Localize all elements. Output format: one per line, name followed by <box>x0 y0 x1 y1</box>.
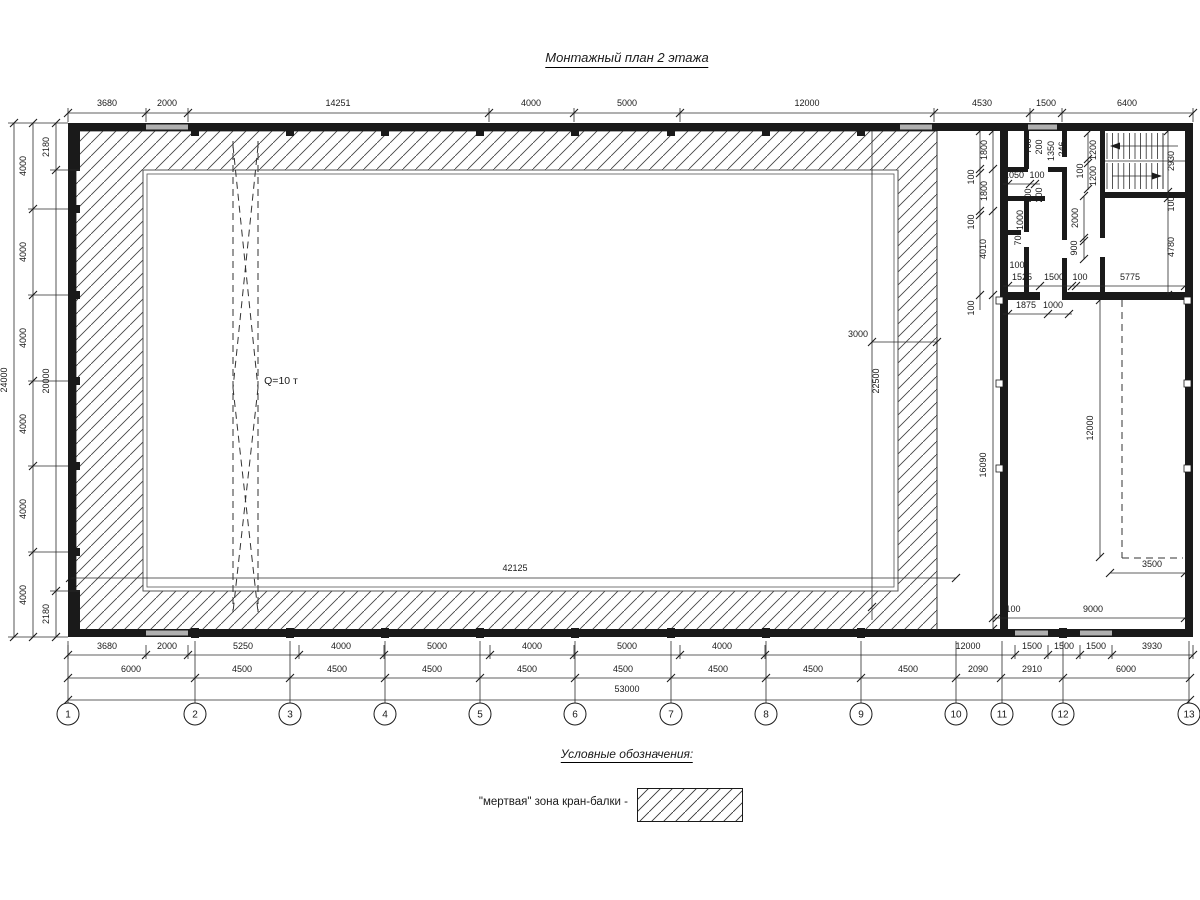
dim-label: 100 <box>1009 260 1024 270</box>
column-marker <box>762 628 770 638</box>
wall <box>1100 257 1105 292</box>
dim-label: 6400 <box>1117 98 1137 108</box>
wall-opening <box>1015 631 1048 636</box>
dim-label: 3930 <box>1142 641 1162 651</box>
window-marker <box>996 465 1003 472</box>
dim-label: 16090 <box>978 452 988 477</box>
column-marker <box>70 462 80 470</box>
dim-label: 4000 <box>712 641 732 651</box>
dim-label: 100 <box>1166 196 1176 211</box>
inner-zone-outline <box>147 174 894 587</box>
grid-bubble-label: 5 <box>477 710 483 721</box>
column-marker <box>476 126 484 136</box>
dim-label: 12000 <box>794 98 819 108</box>
dim-label: 4010 <box>978 239 988 259</box>
dim-label: 2910 <box>1022 664 1042 674</box>
dim-label: 3500 <box>1142 559 1162 569</box>
dim-label: 900 <box>1069 240 1079 255</box>
dim-label: 20000 <box>41 368 51 393</box>
wall <box>1024 247 1029 292</box>
dim-label: 4500 <box>898 664 918 674</box>
dim-label: 1500 <box>1044 272 1064 282</box>
legend-hatch-swatch <box>637 788 743 822</box>
column-marker <box>667 628 675 638</box>
column-marker <box>857 126 865 136</box>
dim-label: 24000 <box>0 367 9 392</box>
dim-label: 2180 <box>41 137 51 157</box>
dim-label: 1200 <box>1088 140 1098 160</box>
dim-label: 4530 <box>972 98 992 108</box>
dim-label: 14251 <box>325 98 350 108</box>
dim-label: 9000 <box>1083 604 1103 614</box>
dim-label: 4500 <box>232 664 252 674</box>
dim-label: 1500 <box>1086 641 1106 651</box>
dim-label: 4000 <box>331 641 351 651</box>
dim-label: 4000 <box>18 242 28 262</box>
dim-label: 1000 <box>1015 210 1025 230</box>
dim-label: 53000 <box>614 684 639 694</box>
dim-label: 1200 <box>1088 166 1098 186</box>
plan-geometry <box>8 108 1197 704</box>
dim-label: 6000 <box>121 664 141 674</box>
column-marker <box>381 126 389 136</box>
wall-opening <box>1028 125 1057 130</box>
dim-label: 4000 <box>18 156 28 176</box>
dim-label: 100 <box>1029 170 1044 180</box>
dim-label: 2000 <box>157 98 177 108</box>
column-marker <box>191 126 199 136</box>
dim-label: 100 <box>1075 163 1085 178</box>
column-marker <box>381 628 389 638</box>
dim-label: 5775 <box>1120 272 1140 282</box>
dim-label: 4500 <box>327 664 347 674</box>
grid-bubble-label: 2 <box>192 710 198 721</box>
dim-label: 2000 <box>1070 208 1080 228</box>
column-marker <box>1059 628 1067 638</box>
dim-label: 1500 <box>1036 98 1056 108</box>
column-marker <box>762 126 770 136</box>
grid-bubble-label: 13 <box>1183 710 1195 721</box>
dim-label: 700 <box>1023 188 1033 203</box>
dim-label: 100 <box>966 300 976 315</box>
column-marker <box>571 126 579 136</box>
column-marker <box>476 628 484 638</box>
dim-label: 1050 <box>1004 170 1024 180</box>
grid-bubble-label: 10 <box>950 710 962 721</box>
wall-opening <box>900 125 932 130</box>
dim-label: 1350 <box>1046 141 1056 161</box>
dim-label: 4000 <box>18 499 28 519</box>
dim-label: 4000 <box>18 328 28 348</box>
dim-label: 1525 <box>1012 272 1032 282</box>
dim-label: 700 <box>1013 230 1023 245</box>
grid-axis-bubbles: 12345678910111213 <box>57 703 1200 725</box>
dim-label: 700 <box>1023 138 1033 153</box>
crane-dead-zone-hatch <box>76 131 937 630</box>
dim-label: 22500 <box>871 368 881 393</box>
column-marker <box>571 628 579 638</box>
dim-label: 1875 <box>1016 300 1036 310</box>
legend-item-label: "мертвая" зона кран-балки - <box>479 796 628 808</box>
dim-label: 2930 <box>1166 151 1176 171</box>
dim-label: 4500 <box>803 664 823 674</box>
drawing-sheet: 3680200014251400050001200045301500640036… <box>0 0 1200 900</box>
drawing-title: Монтажный план 2 этажа <box>545 50 708 68</box>
legend-heading: Условные обозначения: <box>561 747 693 763</box>
grid-bubble-label: 12 <box>1057 710 1069 721</box>
column-marker <box>70 205 80 213</box>
inner-zone-outline <box>143 170 898 591</box>
wall <box>1062 170 1067 240</box>
window-marker <box>1184 465 1191 472</box>
dim-label: 1500 <box>1022 641 1042 651</box>
dim-label: 1000 <box>1043 300 1063 310</box>
wall-opening <box>1080 631 1112 636</box>
grid-bubble-label: 3 <box>287 710 293 721</box>
wall <box>1100 131 1105 196</box>
wall-opening <box>146 631 188 636</box>
wall <box>68 590 80 637</box>
dim-label: 1800 <box>979 181 989 201</box>
dim-label: 2180 <box>41 604 51 624</box>
dim-label: 4000 <box>522 641 542 651</box>
grid-bubble-label: 8 <box>763 710 769 721</box>
column-marker <box>70 291 80 299</box>
dim-label: 4780 <box>1166 237 1176 257</box>
grid-bubble-label: 1 <box>65 710 71 721</box>
grid-bubble-label: 4 <box>382 710 388 721</box>
dim-label: 2000 <box>157 641 177 651</box>
dim-label: 1800 <box>979 140 989 160</box>
dim-label: 4000 <box>521 98 541 108</box>
floor-plan-canvas: 3680200014251400050001200045301500640036… <box>0 0 1200 900</box>
dim-label: Q=10 т <box>264 375 298 387</box>
dim-label: 100 <box>1005 604 1020 614</box>
column-marker <box>286 628 294 638</box>
column-marker <box>70 377 80 385</box>
column-marker <box>70 548 80 556</box>
dim-label: 6000 <box>1116 664 1136 674</box>
dim-label: 3680 <box>97 641 117 651</box>
dim-label: 12000 <box>955 641 980 651</box>
window-marker <box>996 380 1003 387</box>
dim-label: 12000 <box>1085 415 1095 440</box>
dim-label: 4500 <box>517 664 537 674</box>
column-marker <box>667 126 675 136</box>
wall <box>1100 196 1105 238</box>
grid-bubble-label: 9 <box>858 710 864 721</box>
dim-label: 3000 <box>848 329 868 339</box>
window-marker <box>996 297 1003 304</box>
dim-label: 5000 <box>617 98 637 108</box>
dim-label: 200 <box>1034 187 1044 202</box>
dim-label: 3680 <box>97 98 117 108</box>
dim-label: 100 <box>1072 272 1087 282</box>
dim-label: 2090 <box>968 664 988 674</box>
dim-label: 100 <box>966 214 976 229</box>
column-marker <box>191 628 199 638</box>
column-marker <box>286 126 294 136</box>
dim-label: 100 <box>966 169 976 184</box>
door-gap <box>1040 292 1062 300</box>
dim-label: 5250 <box>233 641 253 651</box>
dim-label: 4500 <box>613 664 633 674</box>
wall <box>68 123 80 171</box>
window-marker <box>1184 380 1191 387</box>
dim-label: 42125 <box>502 563 527 573</box>
dim-label: 246 <box>1057 141 1067 156</box>
dim-label: 4000 <box>18 585 28 605</box>
grid-bubble-label: 7 <box>668 710 674 721</box>
stair-arrow <box>1110 143 1120 150</box>
dim-label: 4500 <box>422 664 442 674</box>
grid-bubble-label: 6 <box>572 710 578 721</box>
window-marker <box>1184 297 1191 304</box>
dim-label: 200 <box>1034 139 1044 154</box>
grid-bubble-label: 11 <box>997 710 1008 721</box>
dim-label: 5000 <box>617 641 637 651</box>
dim-label: 5000 <box>427 641 447 651</box>
dim-label: 1500 <box>1054 641 1074 651</box>
dim-label: 4500 <box>708 664 728 674</box>
dim-label: 4000 <box>18 414 28 434</box>
column-marker <box>857 628 865 638</box>
wall-opening <box>146 125 188 130</box>
